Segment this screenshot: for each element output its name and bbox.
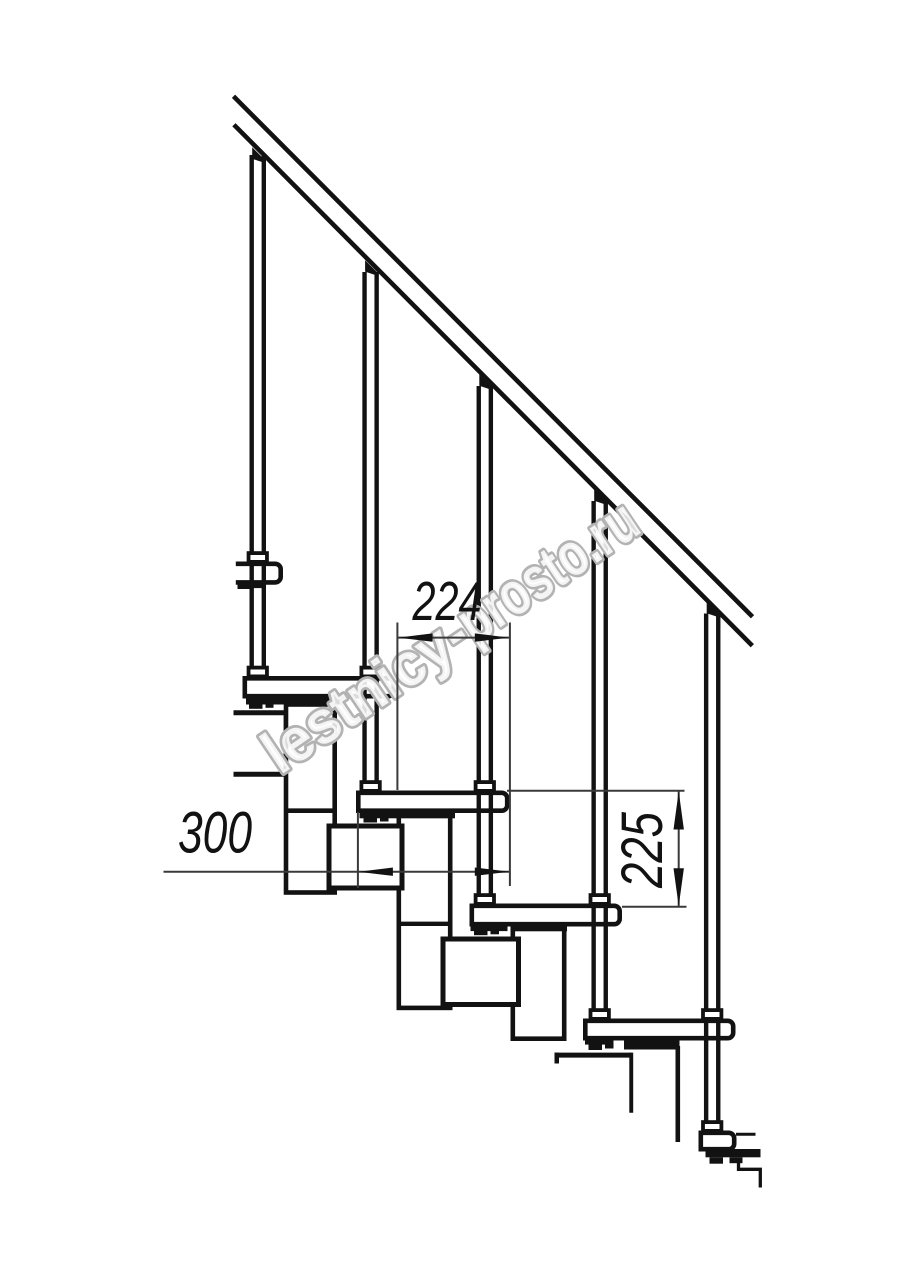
svg-text:224: 224: [412, 571, 482, 632]
svg-text:225: 225: [610, 812, 675, 889]
svg-text:300: 300: [178, 801, 252, 866]
